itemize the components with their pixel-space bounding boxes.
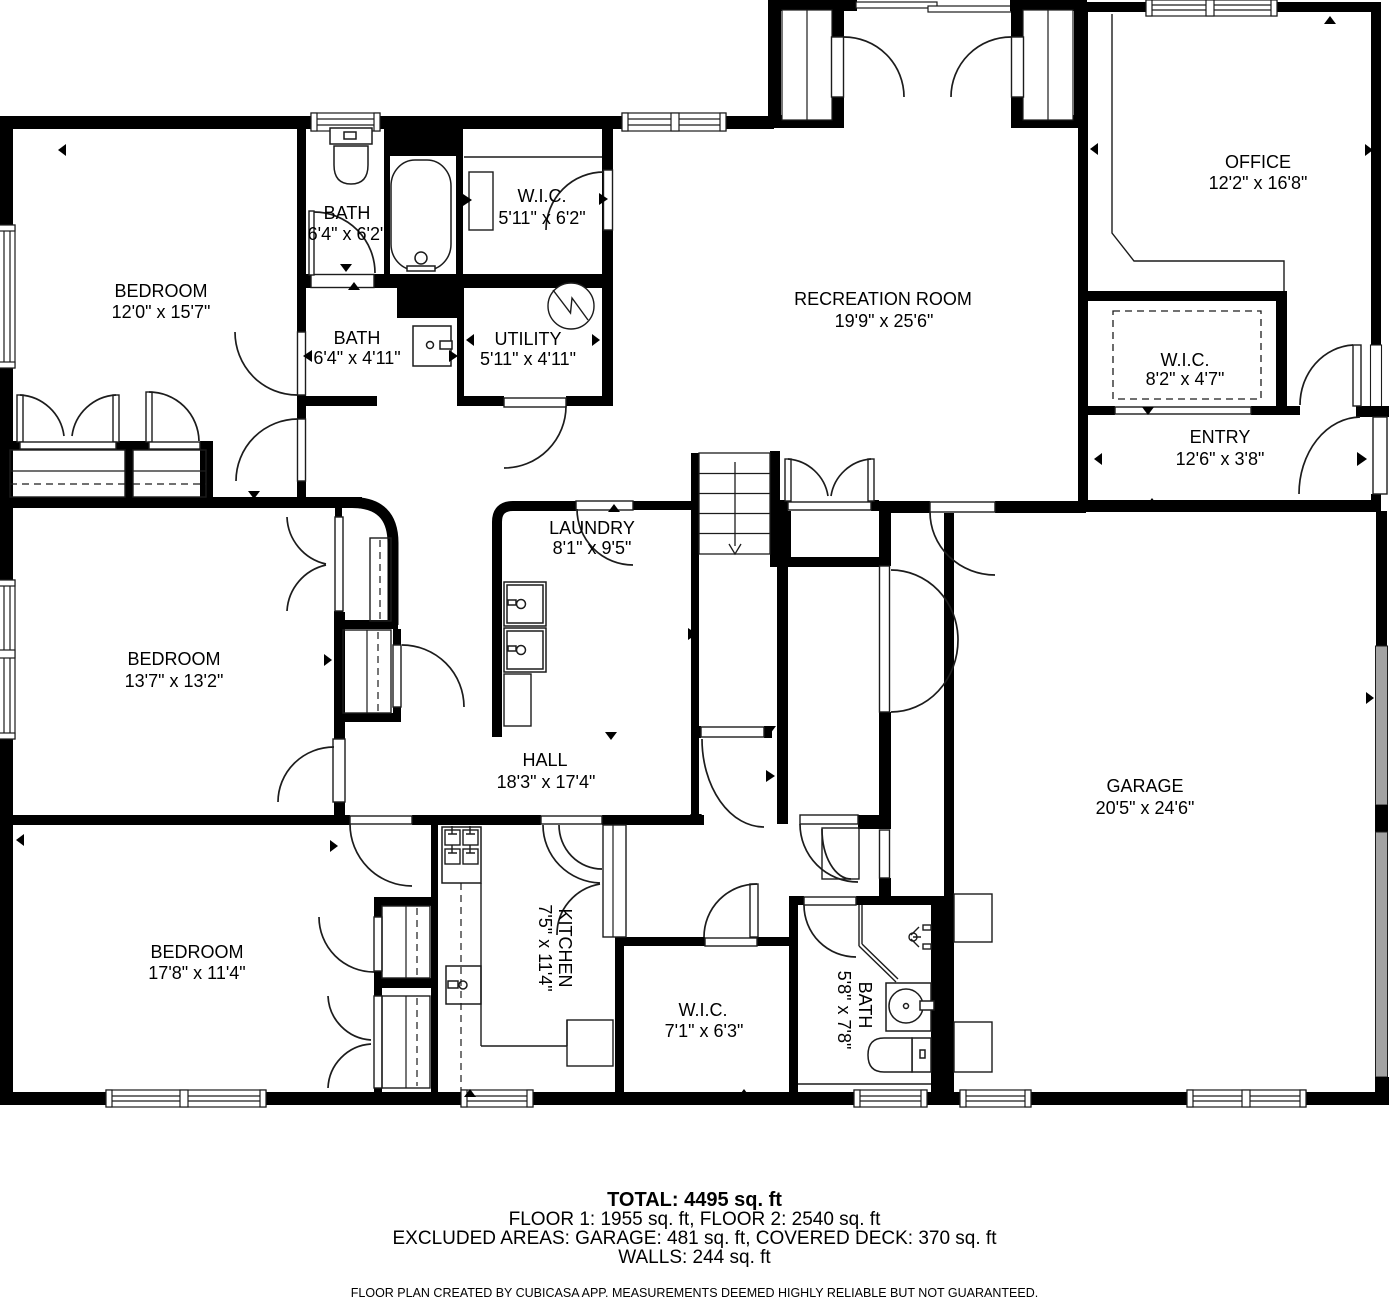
- svg-text:EXCLUDED AREAS: GARAGE: 481 sq: EXCLUDED AREAS: GARAGE: 481 sq. ft, COVE…: [393, 1228, 998, 1249]
- svg-text:LAUNDRY: LAUNDRY: [549, 518, 635, 538]
- svg-text:13'7" x 13'2": 13'7" x 13'2": [125, 671, 224, 691]
- svg-text:19'9" x 25'6": 19'9" x 25'6": [835, 311, 934, 331]
- svg-text:FLOOR 1: 1955 sq. ft, FLOOR 2:: FLOOR 1: 1955 sq. ft, FLOOR 2: 2540 sq. …: [509, 1209, 881, 1230]
- svg-text:W.I.C.: W.I.C.: [679, 1000, 728, 1020]
- svg-text:RECREATION ROOM: RECREATION ROOM: [794, 289, 972, 309]
- svg-text:8'1" x 9'5": 8'1" x 9'5": [553, 538, 632, 558]
- svg-text:BATH: BATH: [855, 982, 875, 1029]
- svg-text:12'6" x 3'8": 12'6" x 3'8": [1176, 449, 1265, 469]
- svg-text:BEDROOM: BEDROOM: [114, 281, 207, 301]
- svg-text:17'8" x 11'4": 17'8" x 11'4": [148, 963, 245, 983]
- svg-text:WALLS: 244 sq. ft: WALLS: 244 sq. ft: [618, 1247, 771, 1268]
- svg-text:5'11" x 4'11": 5'11" x 4'11": [480, 349, 576, 369]
- svg-text:HALL: HALL: [522, 750, 567, 770]
- svg-text:TOTAL: 4495 sq. ft: TOTAL: 4495 sq. ft: [607, 1189, 782, 1211]
- svg-text:BEDROOM: BEDROOM: [127, 649, 220, 669]
- svg-text:7'1" x 6'3": 7'1" x 6'3": [665, 1021, 744, 1041]
- svg-text:UTILITY: UTILITY: [494, 329, 561, 349]
- svg-text:20'5" x 24'6": 20'5" x 24'6": [1096, 798, 1195, 818]
- svg-text:BATH: BATH: [334, 328, 381, 348]
- svg-text:7'5" x 11'4": 7'5" x 11'4": [535, 904, 555, 991]
- svg-text:BATH: BATH: [324, 203, 371, 223]
- svg-text:W.I.C.: W.I.C.: [518, 186, 567, 206]
- svg-text:OFFICE: OFFICE: [1225, 152, 1291, 172]
- svg-text:18'3" x 17'4": 18'3" x 17'4": [497, 772, 596, 792]
- svg-text:FLOOR PLAN CREATED BY CUBICASA: FLOOR PLAN CREATED BY CUBICASA APP. MEAS…: [351, 1286, 1038, 1300]
- svg-text:6'4" x 6'2": 6'4" x 6'2": [308, 224, 387, 244]
- svg-text:12'0" x 15'7": 12'0" x 15'7": [112, 302, 211, 322]
- svg-text:W.I.C.: W.I.C.: [1161, 350, 1210, 370]
- svg-text:5'11" x 6'2": 5'11" x 6'2": [498, 208, 585, 228]
- svg-text:ENTRY: ENTRY: [1190, 427, 1251, 447]
- svg-text:12'2" x 16'8": 12'2" x 16'8": [1209, 173, 1308, 193]
- svg-text:BEDROOM: BEDROOM: [150, 942, 243, 962]
- svg-text:8'2" x 4'7": 8'2" x 4'7": [1146, 369, 1225, 389]
- svg-text:GARAGE: GARAGE: [1106, 776, 1183, 796]
- svg-text:5'8" x 7'8": 5'8" x 7'8": [834, 971, 854, 1050]
- svg-text:KITCHEN: KITCHEN: [555, 908, 575, 987]
- svg-text:6'4" x 4'11": 6'4" x 4'11": [313, 348, 400, 368]
